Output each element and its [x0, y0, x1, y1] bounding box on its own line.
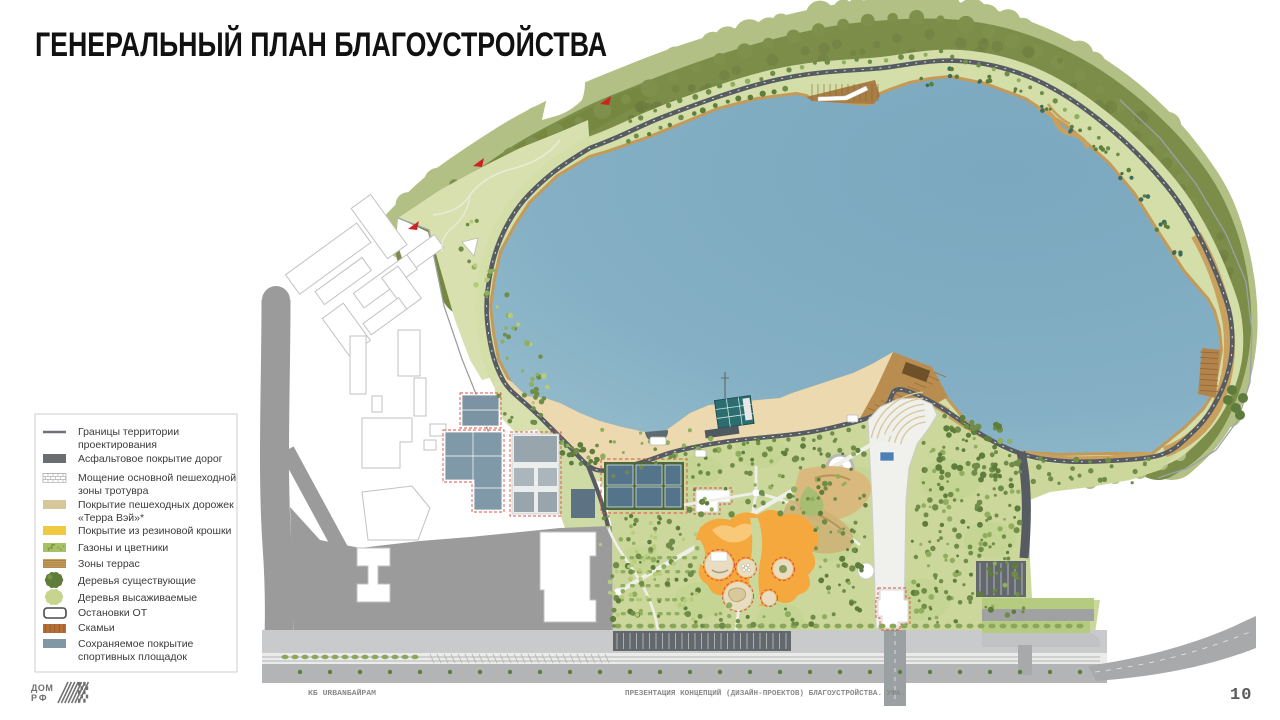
svg-text:РФ: РФ — [31, 693, 49, 703]
svg-text:спортивных площадок: спортивных площадок — [78, 651, 187, 663]
svg-text:ПРЕЗЕНТАЦИЯ КОНЦЕПЦИЙ (ДИЗАЙН-: ПРЕЗЕНТАЦИЯ КОНЦЕПЦИЙ (ДИЗАЙН-ПРОЕКТОВ) … — [625, 689, 905, 698]
svg-text:Остановки ОТ: Остановки ОТ — [78, 607, 148, 619]
svg-text:«Терра Вэй»*: «Терра Вэй»* — [78, 512, 144, 524]
svg-text:КБ URBANБАЙРАМ: КБ URBANБАЙРАМ — [308, 689, 376, 698]
svg-text:Мощение основной пешеходной: Мощение основной пешеходной — [78, 472, 236, 484]
svg-text:зоны тротувра: зоны тротувра — [78, 485, 149, 497]
svg-text:проектирования: проектирования — [78, 439, 157, 451]
svg-text:Скамьи: Скамьи — [78, 622, 115, 634]
svg-text:Деревья существующие: Деревья существующие — [78, 575, 196, 587]
svg-text:Газоны и цветники: Газоны и цветники — [78, 542, 168, 554]
svg-text:Покрытие пешеходных дорожек: Покрытие пешеходных дорожек — [78, 499, 234, 511]
svg-text:Сохраняемое покрытие: Сохраняемое покрытие — [78, 638, 194, 650]
svg-text:ДОМ: ДОМ — [31, 683, 53, 693]
svg-text:Зоны террас: Зоны террас — [78, 558, 140, 570]
svg-text:Деревья высаживаемые: Деревья высаживаемые — [78, 592, 197, 604]
svg-text:10: 10 — [1230, 686, 1252, 705]
svg-text:Границы территории: Границы территории — [78, 426, 179, 438]
svg-text:Асфальтовое покрытие дорог: Асфальтовое покрытие дорог — [78, 453, 223, 465]
svg-text:ГЕНЕРАЛЬНЫЙ ПЛАН БЛАГОУСТРОЙСТ: ГЕНЕРАЛЬНЫЙ ПЛАН БЛАГОУСТРОЙСТВА — [35, 25, 607, 64]
svg-text:Покрытие из резиновой крошки: Покрытие из резиновой крошки — [78, 525, 232, 537]
